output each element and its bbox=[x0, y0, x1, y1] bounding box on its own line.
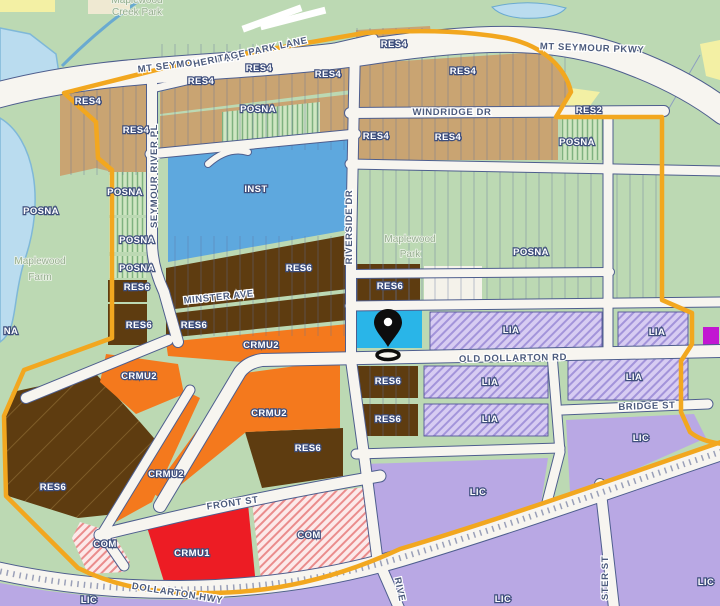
place-label: Maplewood bbox=[14, 256, 65, 267]
map-canvas[interactable]: MaplewoodCreek ParkMaplewoodParkMaplewoo… bbox=[0, 0, 720, 606]
zone-label: RES4 bbox=[450, 66, 477, 77]
street-label: WINDRIDGE DR bbox=[413, 107, 492, 118]
zone-label: RES4 bbox=[435, 132, 462, 143]
zone-label: POSNA bbox=[119, 263, 155, 274]
zone-label: LIA bbox=[482, 377, 499, 388]
zone-label: CRMU2 bbox=[121, 371, 157, 382]
zone-label: RES4 bbox=[123, 125, 150, 136]
place-label: Maplewood bbox=[384, 234, 435, 245]
street-label: SEYMOUR RIVER PL bbox=[149, 124, 160, 228]
zone-label: LIA bbox=[482, 414, 499, 425]
zone-label: RES4 bbox=[246, 63, 273, 74]
zone-label: RES6 bbox=[286, 263, 312, 274]
zone-label: CRMU2 bbox=[243, 340, 279, 351]
zone-label: RES6 bbox=[181, 320, 207, 331]
zone-label: POSNA bbox=[119, 235, 155, 246]
zone-label: RES4 bbox=[315, 69, 342, 80]
zone-label: COM bbox=[297, 530, 320, 541]
place-label: Creek Park bbox=[112, 7, 163, 18]
zone-label: POSNA bbox=[559, 137, 595, 148]
zone-label: RES6 bbox=[295, 443, 321, 454]
zone-label: POSNA bbox=[107, 187, 143, 198]
zone-label: POSNA bbox=[23, 206, 59, 217]
zone-label: RES4 bbox=[381, 39, 408, 50]
street-label: OLD DOLLARTON RD bbox=[459, 352, 567, 365]
zone-label: INST bbox=[244, 184, 267, 195]
zone-label: CRMU2 bbox=[148, 469, 184, 480]
zone-label: LIA bbox=[626, 372, 643, 383]
place-label: Maplewood bbox=[111, 0, 162, 6]
zone-label: LIA bbox=[503, 325, 520, 336]
zone-label: RES6 bbox=[124, 282, 150, 293]
road-fill bbox=[356, 448, 560, 454]
zone-label: LIA bbox=[649, 327, 666, 338]
zone-label: RES6 bbox=[375, 414, 401, 425]
road-fill bbox=[352, 272, 610, 274]
zone-label: LIC bbox=[495, 594, 512, 605]
zone-label: CRMU2 bbox=[251, 408, 287, 419]
zone-label: LIC bbox=[698, 577, 715, 588]
zone-label: RES6 bbox=[40, 482, 66, 493]
road-fill bbox=[350, 111, 664, 113]
zone-label: LIC bbox=[81, 595, 98, 606]
zone-label: RES4 bbox=[188, 76, 215, 87]
zone-label: RES2 bbox=[576, 105, 602, 116]
zone-label: RES6 bbox=[377, 281, 403, 292]
zone-label: RES4 bbox=[75, 96, 102, 107]
zone-label: COM bbox=[93, 539, 116, 550]
zone-label: CRMU1 bbox=[174, 548, 210, 559]
zone-label: NA bbox=[4, 326, 19, 337]
place-label: Park bbox=[400, 249, 422, 260]
street-label: BRIDGE ST bbox=[618, 400, 675, 413]
zone-label: LIC bbox=[470, 487, 487, 498]
zone-label: RES6 bbox=[375, 376, 401, 387]
zone-label: POSNA bbox=[513, 247, 549, 258]
zone-label: POSNA bbox=[240, 104, 276, 115]
place-label: Farm bbox=[28, 272, 51, 283]
street-label: RIVERSIDE DR bbox=[344, 190, 355, 265]
zone-label: LIC bbox=[633, 433, 650, 444]
zone-label: RES6 bbox=[126, 320, 152, 331]
zone-label: RES4 bbox=[363, 131, 390, 142]
street-label: STER ST bbox=[600, 556, 611, 600]
